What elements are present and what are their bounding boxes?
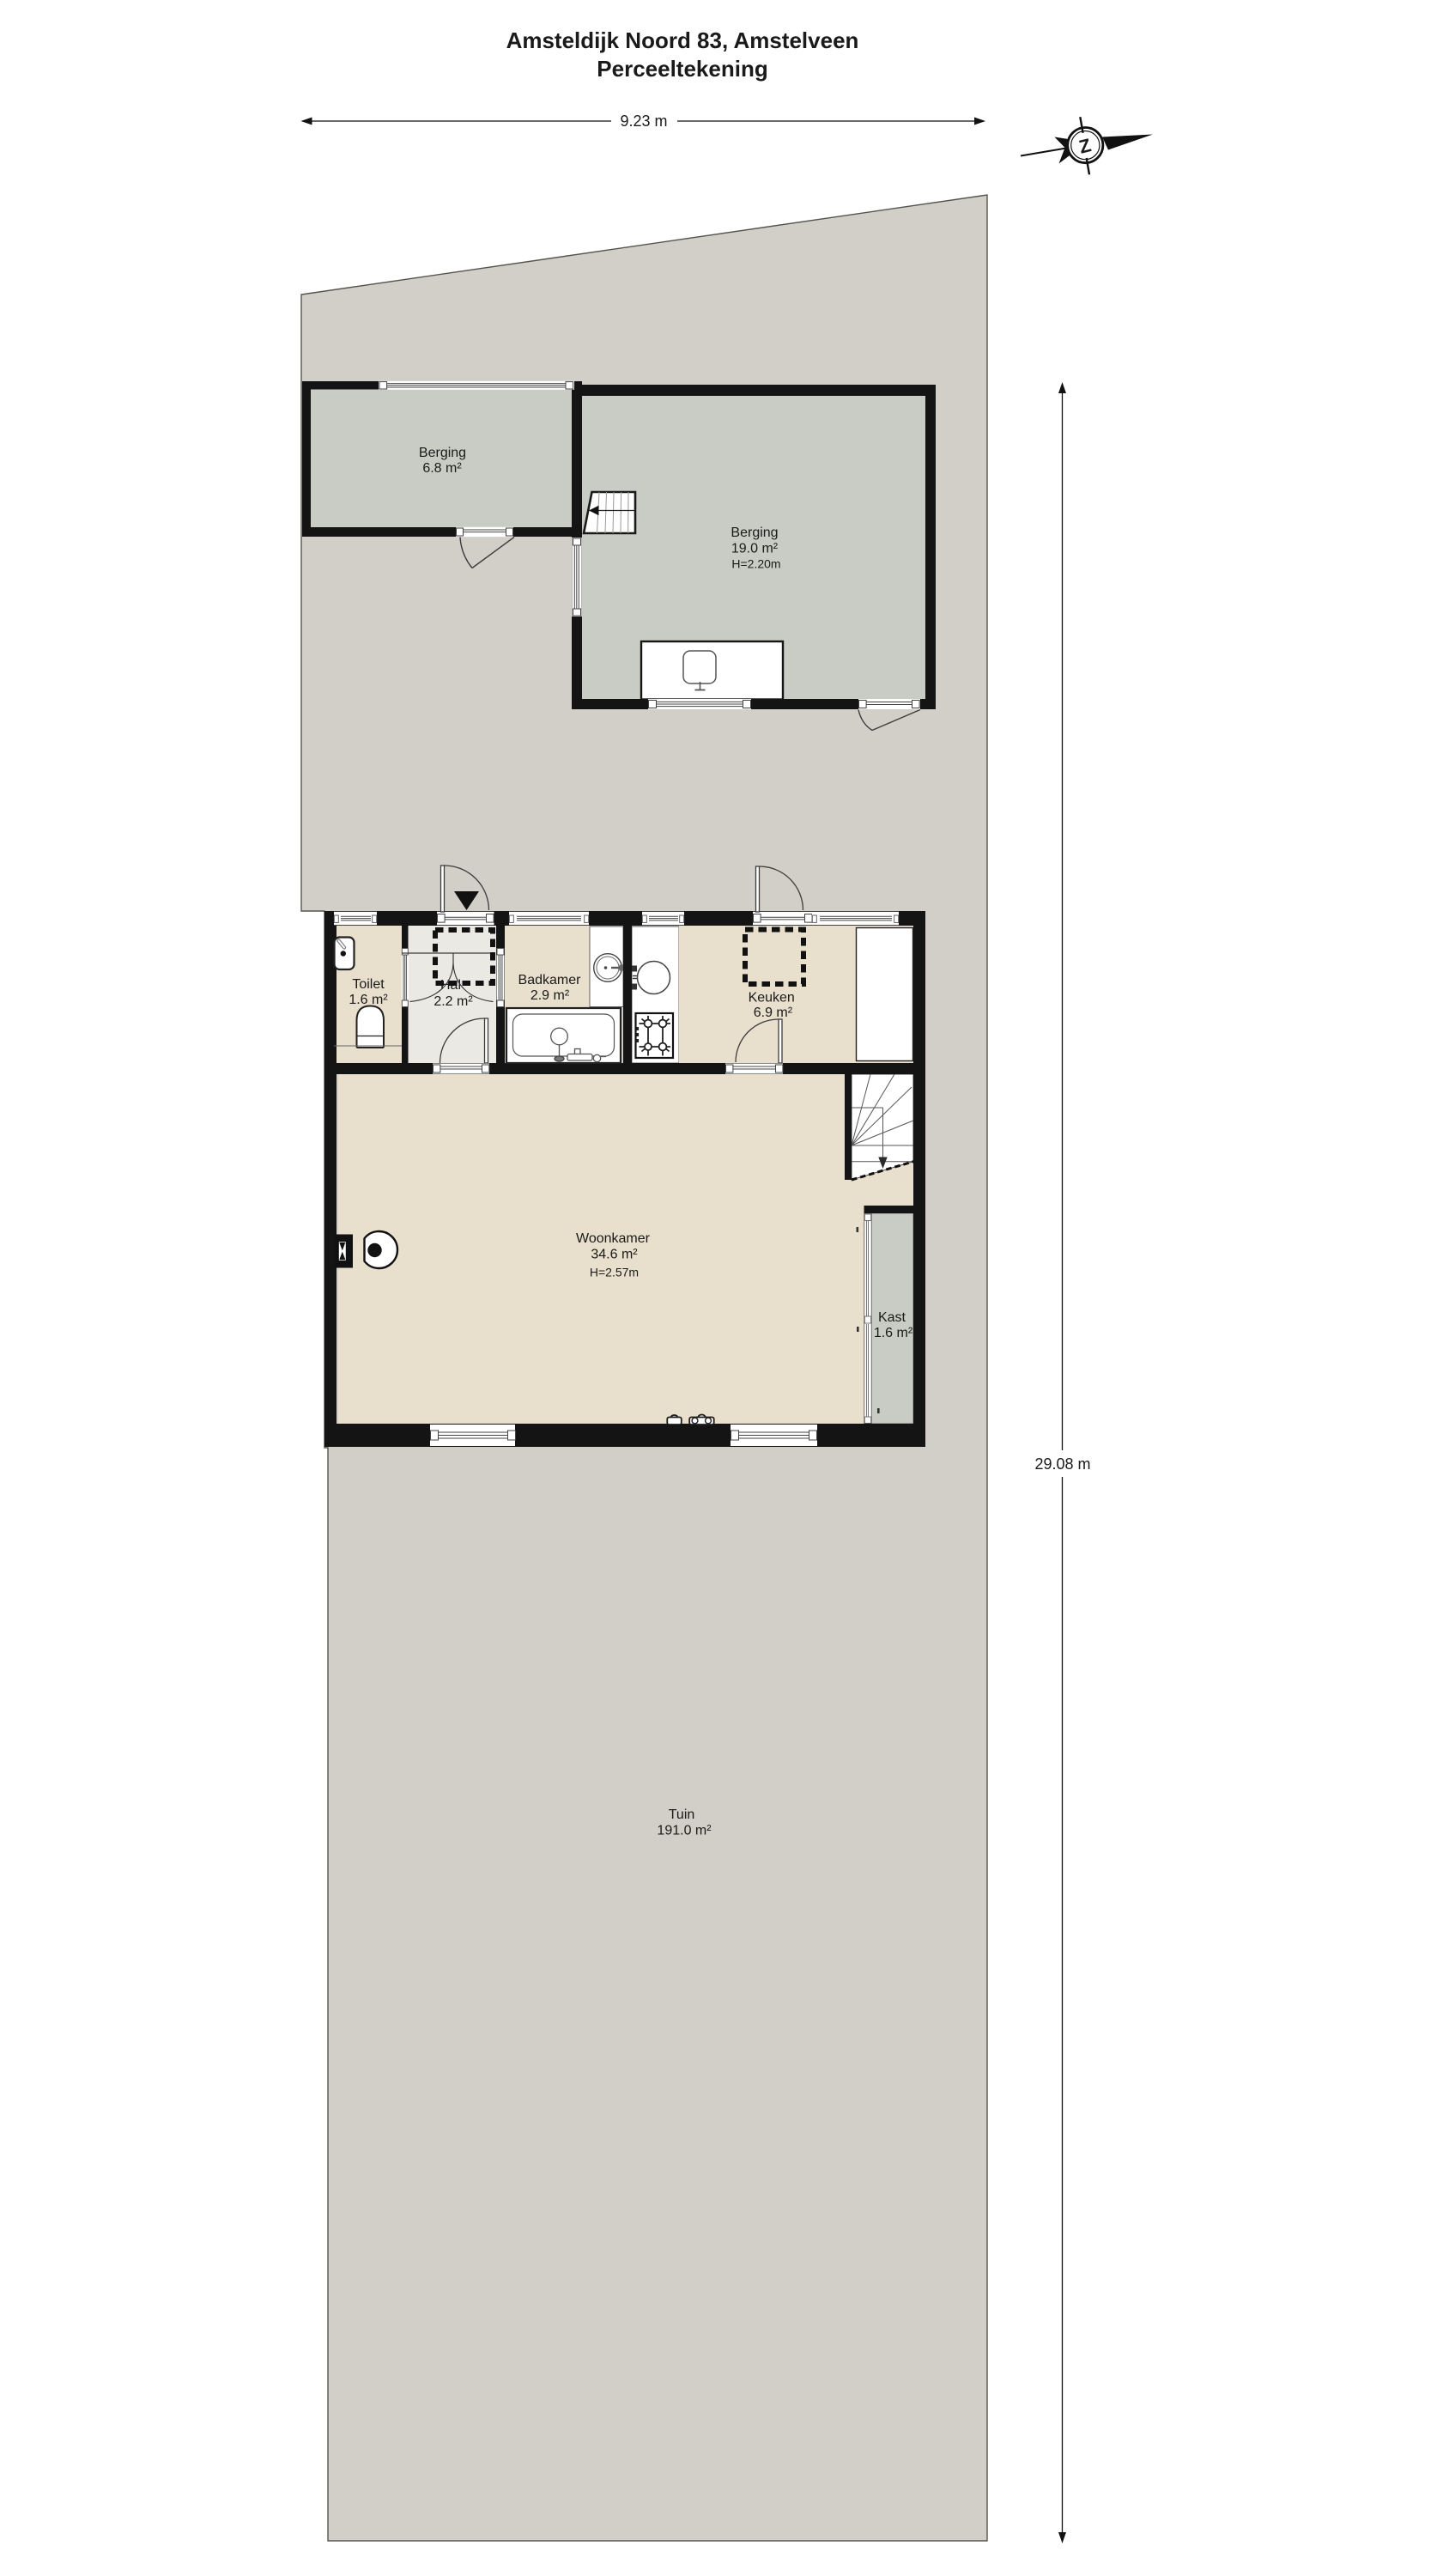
svg-text:Berging: Berging [419, 446, 466, 460]
svg-text:19.0 m²: 19.0 m² [731, 542, 779, 556]
svg-text:6.8 m²: 6.8 m² [422, 461, 462, 476]
svg-text:Berging: Berging [731, 526, 778, 540]
svg-text:Toilet: Toilet [352, 977, 385, 992]
svg-text:H=2.20m: H=2.20m [731, 557, 780, 571]
svg-text:H=2.57m: H=2.57m [590, 1266, 639, 1279]
svg-text:29.08 m: 29.08 m [1034, 1455, 1090, 1473]
svg-text:6.9 m²: 6.9 m² [754, 1005, 793, 1020]
svg-text:9.23 m: 9.23 m [620, 112, 667, 130]
svg-text:Perceeltekening: Perceeltekening [597, 56, 767, 82]
svg-text:2.2 m²: 2.2 m² [433, 994, 473, 1009]
svg-text:2.9 m²: 2.9 m² [530, 988, 570, 1003]
svg-text:34.6 m²: 34.6 m² [591, 1248, 638, 1262]
svg-text:Badkamer: Badkamer [518, 973, 582, 987]
svg-text:191.0 m²: 191.0 m² [657, 1824, 712, 1838]
svg-text:Keuken: Keuken [749, 991, 795, 1005]
svg-text:Woonkamer: Woonkamer [576, 1231, 651, 1246]
svg-text:Amsteldijk Noord 83, Amstelvee: Amsteldijk Noord 83, Amstelveen [506, 27, 859, 53]
svg-text:Tuin: Tuin [669, 1807, 695, 1822]
svg-text:1.6 m²: 1.6 m² [874, 1326, 913, 1340]
svg-text:1.6 m²: 1.6 m² [349, 993, 388, 1007]
svg-text:Kast: Kast [878, 1310, 906, 1325]
